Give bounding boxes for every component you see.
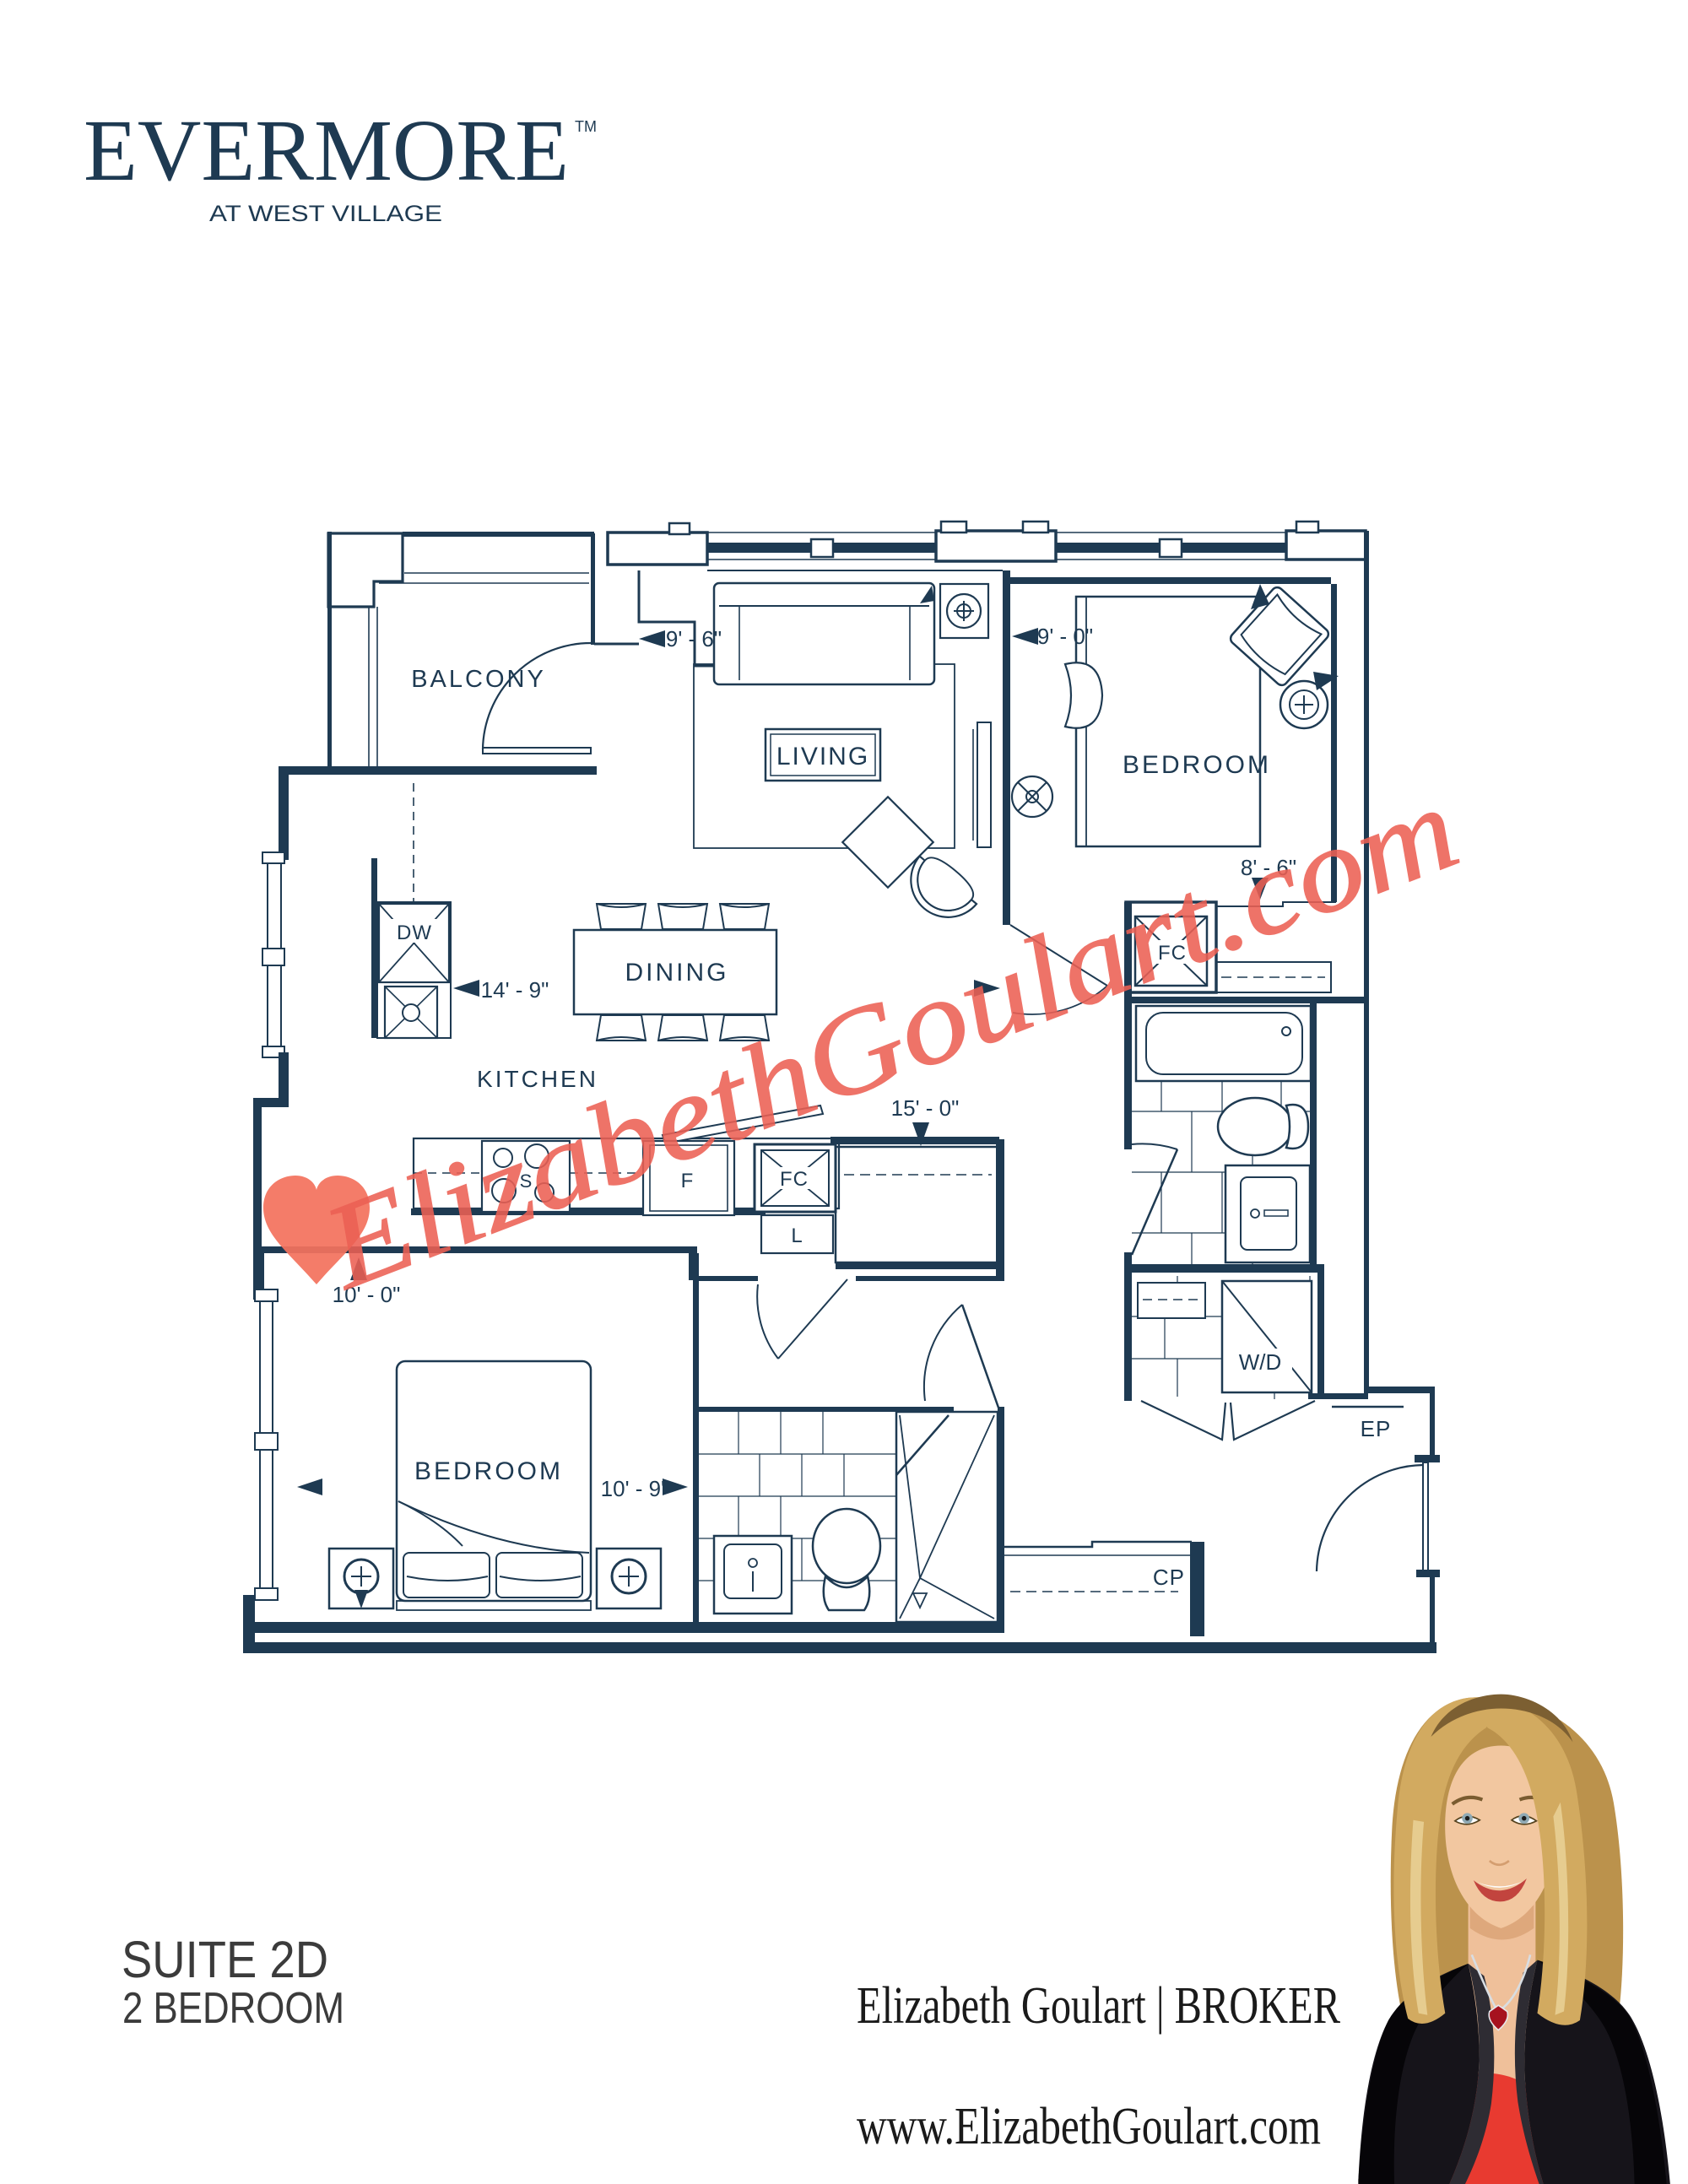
svg-text:L: L: [791, 1224, 802, 1247]
svg-text:LIVING: LIVING: [776, 743, 869, 770]
svg-text:TM: TM: [575, 118, 597, 135]
svg-text:14' - 9": 14' - 9": [481, 977, 549, 1003]
svg-text:www.ElizabethGoulart.com: www.ElizabethGoulart.com: [857, 2098, 1321, 2155]
svg-text:EP: EP: [1361, 1416, 1392, 1441]
svg-text:9' - 0": 9' - 0": [1037, 624, 1093, 649]
svg-text:SUITE 2D: SUITE 2D: [122, 1931, 328, 1988]
svg-text:AT WEST VILLAGE: AT WEST VILLAGE: [209, 201, 442, 226]
svg-text:DINING: DINING: [625, 959, 729, 987]
svg-text:10' - 9": 10' - 9": [601, 1476, 669, 1501]
svg-text:DW: DW: [397, 922, 432, 944]
svg-text:9' - 6": 9' - 6": [666, 626, 722, 651]
svg-text:BEDROOM: BEDROOM: [1123, 751, 1271, 779]
svg-text:2 BEDROOM: 2 BEDROOM: [122, 1984, 344, 2033]
svg-text:BALCONY: BALCONY: [411, 666, 546, 693]
svg-text:CP: CP: [1153, 1565, 1185, 1590]
svg-text:FC: FC: [780, 1168, 809, 1191]
svg-text:BEDROOM: BEDROOM: [414, 1457, 563, 1485]
svg-text:W/D: W/D: [1239, 1349, 1282, 1375]
svg-text:EVERMORE: EVERMORE: [84, 102, 569, 199]
svg-text:Elizabeth Goulart | BROKER: Elizabeth Goulart | BROKER: [857, 1977, 1341, 2035]
